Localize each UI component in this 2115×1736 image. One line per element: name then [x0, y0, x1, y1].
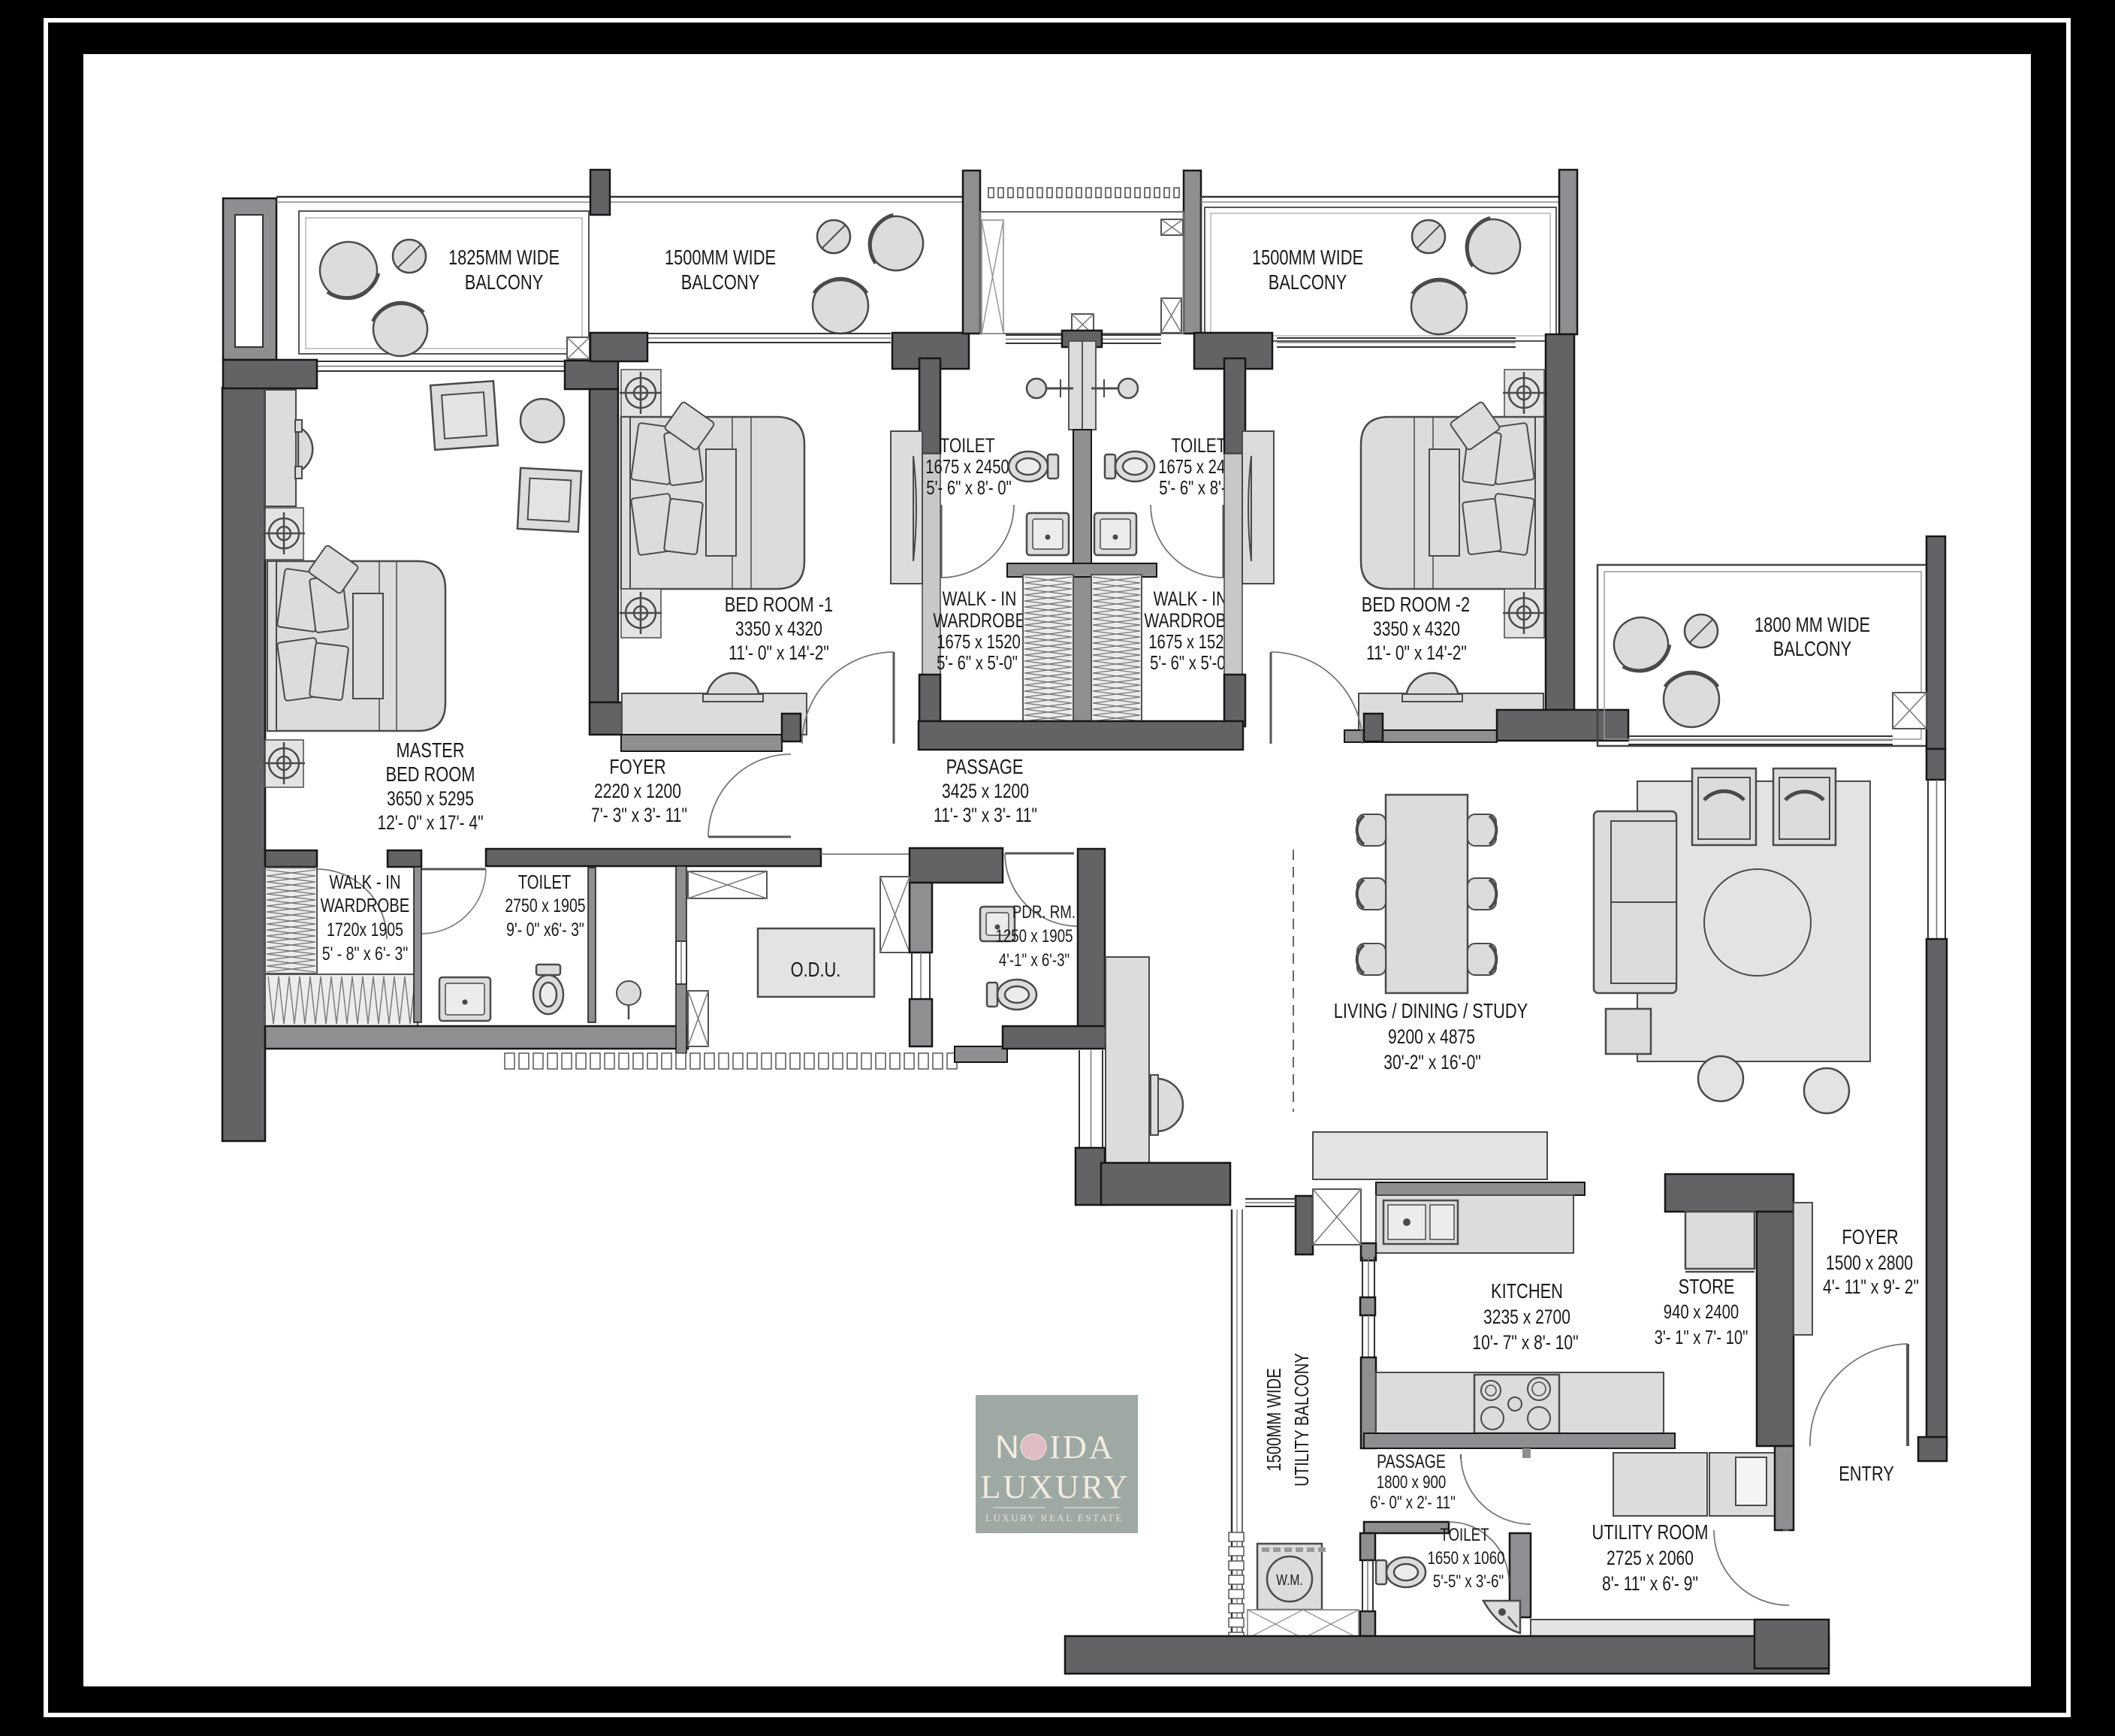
svg-text:10'- 7" x 8'- 10": 10'- 7" x 8'- 10": [1472, 1331, 1578, 1354]
svg-text:TOILET: TOILET: [1171, 434, 1226, 457]
svg-text:1650 x 1060: 1650 x 1060: [1427, 1548, 1504, 1568]
svg-text:5'-5" x 3'-6": 5'-5" x 3'-6": [1433, 1571, 1504, 1592]
svg-text:PASSAGE: PASSAGE: [1377, 1451, 1446, 1472]
svg-text:9200 x 4875: 9200 x 4875: [1388, 1025, 1475, 1048]
svg-text:9'- 0" x6'- 3": 9'- 0" x6'- 3": [506, 919, 584, 940]
svg-text:2725 x 2060: 2725 x 2060: [1607, 1547, 1694, 1569]
svg-text:11'- 0" x 14'-2": 11'- 0" x 14'-2": [1366, 642, 1467, 664]
svg-text:1675 x 1520: 1675 x 1520: [1148, 630, 1232, 653]
svg-text:WALK - IN: WALK - IN: [943, 587, 1017, 610]
svg-text:30'-2" x 16'-0": 30'-2" x 16'-0": [1383, 1051, 1481, 1073]
svg-text:STORE: STORE: [1679, 1275, 1735, 1298]
svg-text:6'- 0" x 2'- 11": 6'- 0" x 2'- 11": [1370, 1493, 1456, 1513]
svg-text:BED ROOM -1: BED ROOM -1: [725, 593, 833, 616]
svg-text:7'- 3" x 3'- 11": 7'- 3" x 3'- 11": [591, 804, 687, 826]
svg-text:1500MM WIDE: 1500MM WIDE: [665, 246, 776, 269]
svg-text:WARDROBE: WARDROBE: [1144, 609, 1236, 632]
svg-text:LIVING / DINING / STUDY: LIVING / DINING / STUDY: [1334, 999, 1528, 1022]
svg-text:UTILITY BALCONY: UTILITY BALCONY: [1290, 1353, 1313, 1487]
svg-text:3650 x 5295: 3650 x 5295: [387, 787, 474, 810]
svg-text:BALCONY: BALCONY: [1773, 637, 1852, 660]
svg-text:BED ROOM -2: BED ROOM -2: [1362, 593, 1470, 616]
svg-text:W.M.: W.M.: [1276, 1572, 1303, 1589]
svg-text:11'- 3" x 3'- 11": 11'- 3" x 3'- 11": [934, 804, 1037, 826]
svg-text:4'-1" x 6'-3": 4'-1" x 6'-3": [999, 950, 1070, 971]
svg-text:1500MM WIDE: 1500MM WIDE: [1252, 246, 1363, 269]
svg-text:WARDROBE: WARDROBE: [321, 894, 410, 916]
svg-text:WALK - IN: WALK - IN: [1154, 587, 1228, 610]
svg-text:O.D.U.: O.D.U.: [791, 958, 841, 981]
svg-text:5'- 6" x 8'- 0": 5'- 6" x 8'- 0": [926, 476, 1011, 499]
svg-text:11'- 0" x 14'-2": 11'- 0" x 14'-2": [729, 642, 829, 664]
svg-text:BALCONY: BALCONY: [681, 270, 760, 294]
svg-text:N: N: [995, 1429, 1019, 1466]
svg-text:940 x 2400: 940 x 2400: [1664, 1300, 1739, 1323]
svg-text:1720x 1905: 1720x 1905: [327, 919, 403, 940]
svg-text:2220 x 1200: 2220 x 1200: [594, 780, 681, 802]
svg-text:UTILITY ROOM: UTILITY ROOM: [1592, 1520, 1709, 1544]
svg-text:1250 x 1905: 1250 x 1905: [995, 926, 1073, 946]
svg-text:KITCHEN: KITCHEN: [1491, 1279, 1563, 1303]
svg-text:TOILET: TOILET: [518, 871, 572, 893]
svg-text:WARDROBE: WARDROBE: [933, 609, 1025, 632]
svg-text:ENTRY: ENTRY: [1839, 1462, 1894, 1485]
svg-text:LUXURY REAL ESTATE: LUXURY REAL ESTATE: [985, 1512, 1124, 1523]
svg-text:4'- 11" x 9'- 2": 4'- 11" x 9'- 2": [1823, 1276, 1919, 1298]
svg-text:3350 x 4320: 3350 x 4320: [1373, 617, 1460, 640]
svg-text:5'- 6" x 5'-0": 5'- 6" x 5'-0": [937, 651, 1018, 674]
svg-text:TOILET: TOILET: [940, 434, 994, 457]
svg-text:12'- 0" x 17'- 4": 12'- 0" x 17'- 4": [377, 811, 483, 834]
svg-text:BALCONY: BALCONY: [465, 270, 544, 294]
svg-text:1825MM WIDE: 1825MM WIDE: [448, 246, 560, 269]
svg-text:1675 x 1520: 1675 x 1520: [937, 630, 1021, 653]
svg-text:TOILET: TOILET: [1440, 1525, 1489, 1545]
svg-text:8'- 11" x 6'- 9": 8'- 11" x 6'- 9": [1602, 1572, 1698, 1595]
svg-text:BED ROOM: BED ROOM: [386, 762, 475, 786]
svg-text:5' - 8" x 6'- 3": 5' - 8" x 6'- 3": [322, 943, 409, 965]
svg-text:5'- 6" x 5'-0": 5'- 6" x 5'-0": [1150, 651, 1231, 674]
svg-text:LUXURY: LUXURY: [981, 1469, 1130, 1505]
svg-text:IDA: IDA: [1049, 1429, 1115, 1466]
svg-text:BALCONY: BALCONY: [1269, 270, 1347, 294]
svg-text:PDR. RM.: PDR. RM.: [1012, 902, 1076, 922]
svg-text:PASSAGE: PASSAGE: [946, 755, 1024, 778]
svg-text:FOYER: FOYER: [609, 755, 665, 778]
svg-text:3'- 1" x 7'- 10": 3'- 1" x 7'- 10": [1655, 1326, 1748, 1348]
svg-text:MASTER: MASTER: [397, 738, 465, 762]
svg-text:1500MM WIDE: 1500MM WIDE: [1263, 1368, 1285, 1472]
svg-text:1500 x 2800: 1500 x 2800: [1826, 1251, 1913, 1274]
svg-text:1800 x 900: 1800 x 900: [1377, 1472, 1447, 1493]
svg-text:FOYER: FOYER: [1842, 1225, 1898, 1248]
svg-text:WALK - IN: WALK - IN: [330, 871, 401, 893]
svg-text:3350 x 4320: 3350 x 4320: [735, 617, 822, 640]
svg-text:3425 x 1200: 3425 x 1200: [942, 780, 1029, 802]
svg-text:2750 x 1905: 2750 x 1905: [505, 895, 585, 916]
svg-text:1675 x 2450: 1675 x 2450: [925, 455, 1009, 478]
svg-text:3235 x 2700: 3235 x 2700: [1483, 1306, 1570, 1328]
svg-text:1800 MM WIDE: 1800 MM WIDE: [1754, 613, 1870, 636]
